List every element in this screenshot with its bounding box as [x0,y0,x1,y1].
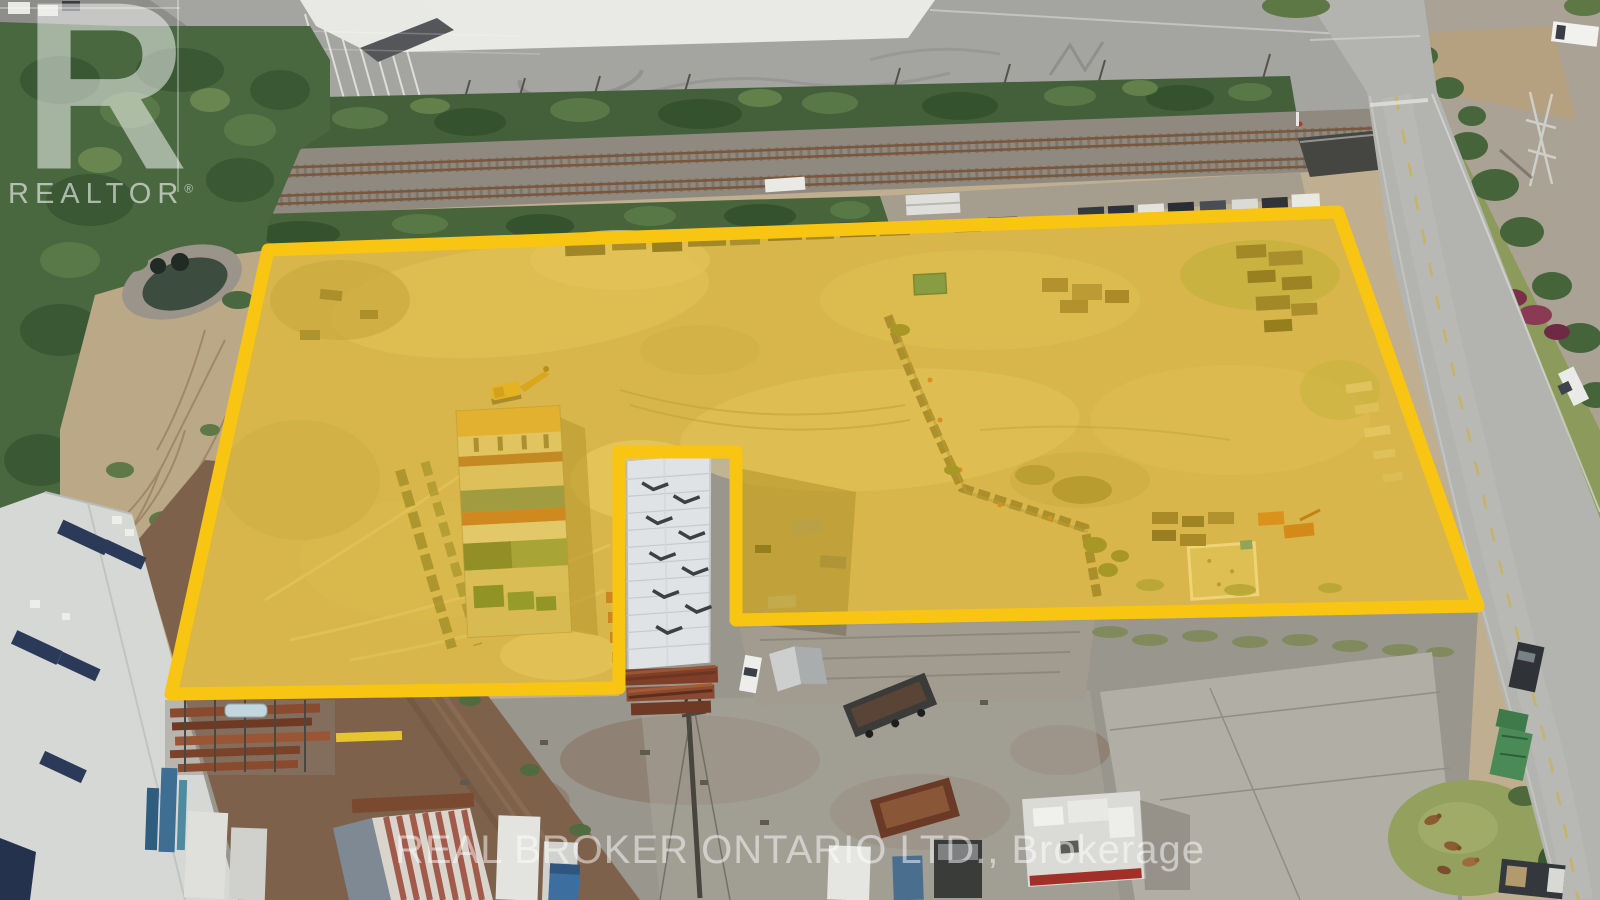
blue-machine [892,855,924,900]
tank [225,704,267,717]
steel-stacks-south [622,666,720,715]
striped-roof-building [333,793,493,900]
blue-containers [159,768,178,853]
bottom-right-truck [1498,859,1565,900]
parked-truck [765,177,806,193]
aerial-listing-photo: R REALTOR® REAL BROKER ONTARIO LTD., Bro… [0,0,1600,900]
flatbed-truck-loaded [1022,791,1146,887]
box-truck [827,845,871,900]
warehouse-building [614,454,719,715]
blue-shipping-container [548,863,580,900]
aerial-scene [0,0,1600,900]
white-trailer [184,811,228,899]
trackside-shed [906,193,961,216]
